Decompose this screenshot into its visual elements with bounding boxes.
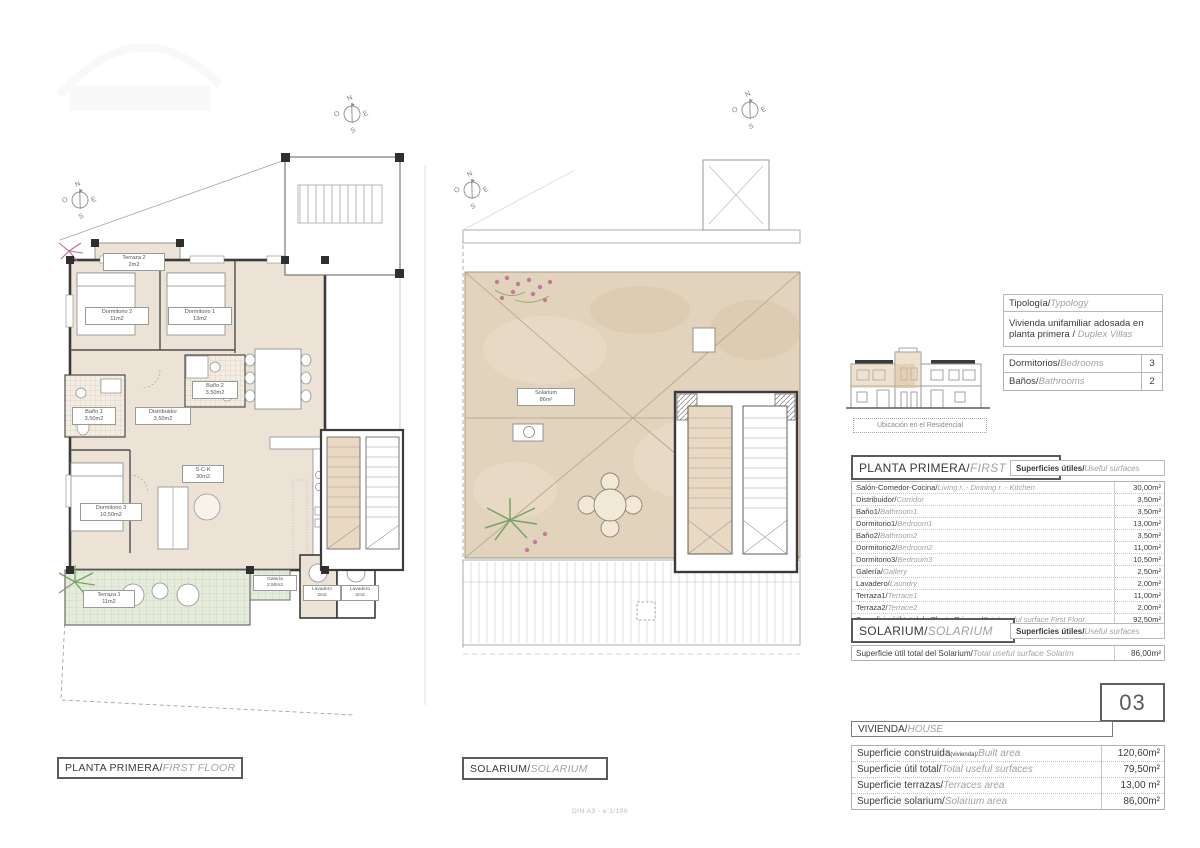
table-row: Terraza2/Terrace22,00m² <box>852 602 1164 614</box>
table-row: Superficie útil total del Solarium/Total… <box>852 646 1164 660</box>
scale-note: DIN A3 - e:1/100 <box>540 808 660 815</box>
plan-sheet: N O E S N O E S <box>0 0 1200 848</box>
room-label-dormitorio2: Dormitorio 211m2 <box>85 307 149 325</box>
table-row: Baño1/Bathroom13,50m² <box>852 506 1164 518</box>
caption-solarium: SOLARIUM/SOLARIUM <box>462 757 608 780</box>
table-row: Superficie terrazas/Terraces area 13,00 … <box>852 778 1164 794</box>
first-floor-surfaces-label: Superficies útiles/Useful surfaces <box>1010 460 1165 476</box>
compass-s: S <box>350 126 358 135</box>
vivienda-label: VIVIENDA/HOUSE <box>851 721 1113 737</box>
compass-o: O <box>333 110 342 119</box>
watermark-logo <box>40 25 240 125</box>
room-label-lavadero-b: Lavadero2m2 <box>341 585 379 601</box>
table-row: Lavadero/Laundry2,00m² <box>852 578 1164 590</box>
elevation-caption: Ubicación en el Residencial <box>853 418 987 433</box>
room-label-lavadero-a: Lavadero2m2 <box>303 585 341 601</box>
table-row: Dormitorio2/Bedroom211,00m² <box>852 542 1164 554</box>
room-label-terraza2: Terraza 22m2 <box>103 253 165 271</box>
compass-n: N <box>744 90 752 99</box>
table-row: Galería/Gallery2,50m² <box>852 566 1164 578</box>
compass-n: N <box>346 94 354 103</box>
counts-table: Dormitorios/Bedrooms 3 Baños/Bathrooms 2 <box>1003 354 1163 391</box>
room-label-bano2: Baño 23,50m2 <box>192 381 238 399</box>
table-row: Superficie útil total/Total useful surfa… <box>852 762 1164 778</box>
table-row: Distribuidor/Corridor3,50m² <box>852 494 1164 506</box>
compass-e: E <box>362 110 370 119</box>
room-label-galeria: Galería2,50m2 <box>253 575 297 591</box>
room-label-terraza1: Terraza 111m2 <box>83 590 135 608</box>
room-label-sck: S-C-K30m2 <box>182 465 224 483</box>
room-label-dormitorio3: Dormitorio 310,50m2 <box>80 503 142 521</box>
first-floor-plan: Terraza 22m2 Dormitorio 211m2 Dormitorio… <box>55 145 435 735</box>
caption-first-floor: PLANTA PRIMERA/FIRST FLOOR <box>57 757 243 779</box>
first-floor-table: Salón-Comedor-Cocina/Living r. - Dinning… <box>851 481 1165 626</box>
room-label-bano1: Baño 13,50m2 <box>72 407 116 425</box>
table-row: Dormitorio1/Bedroom113,00m² <box>852 518 1164 530</box>
room-label-distribuidor: Distribuidor3,50m2 <box>135 407 191 425</box>
table-row: Baños/Bathrooms 2 <box>1004 373 1162 390</box>
house-table: Superficie construida(vivienda)/Built ar… <box>851 745 1165 810</box>
solarium-surfaces-label: Superficies útiles/Useful surfaces <box>1010 623 1165 639</box>
room-label-dormitorio1: Dormitorio 113m2 <box>168 307 232 325</box>
solarium-plan: Solarium86m² <box>455 130 805 665</box>
table-row: Superficie construida(vivienda)/Built ar… <box>852 746 1164 762</box>
table-row: Superficie solarium/Solarium area 86,00m… <box>852 794 1164 809</box>
room-label-solarium: Solarium86m² <box>517 388 575 406</box>
table-row: Baño2/Bathroom23,50m² <box>852 530 1164 542</box>
compass-icon: N O E S <box>330 92 374 141</box>
elevation-drawing <box>843 346 993 414</box>
typology-value: Vivienda unifamiliar adosada en planta p… <box>1003 311 1163 347</box>
table-row: Salón-Comedor-Cocina/Living r. - Dinning… <box>852 482 1164 494</box>
solarium-table: Superficie útil total del Solarium/Total… <box>851 645 1165 661</box>
compass-e: E <box>760 106 768 115</box>
compass-o: O <box>731 106 740 115</box>
solarium-table-title: SOLARIUM/SOLARIUM <box>851 618 1015 643</box>
unit-number: 03 <box>1100 683 1165 722</box>
table-row: Dormitorios/Bedrooms 3 <box>1004 355 1162 373</box>
table-row: Dormitorio3/Bedroom310,50m² <box>852 554 1164 566</box>
table-row: Terraza1/Terrace111,00m² <box>852 590 1164 602</box>
